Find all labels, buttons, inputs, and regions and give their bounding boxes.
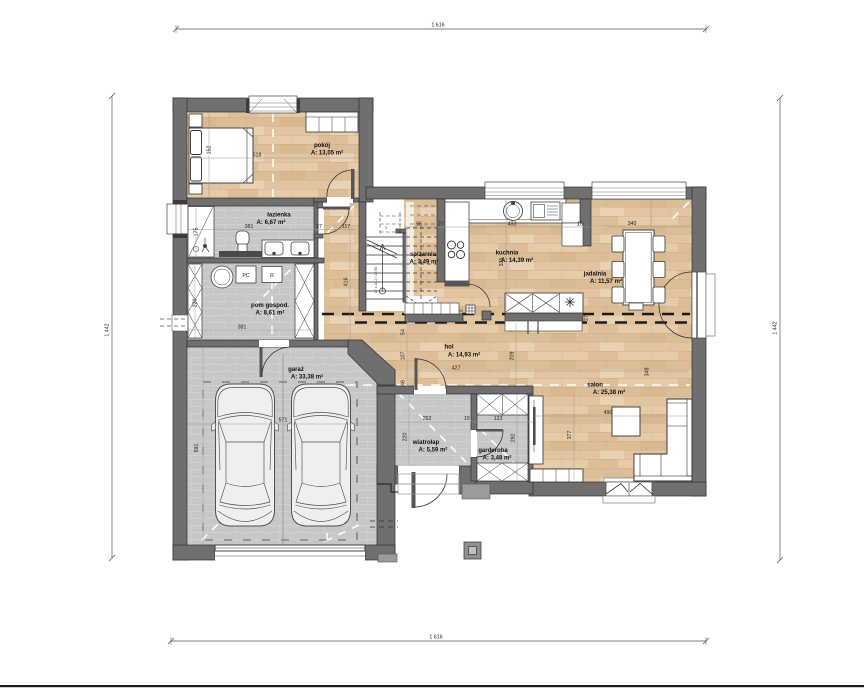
svg-text:175: 175 (194, 228, 200, 237)
svg-text:220: 220 (193, 299, 199, 308)
svg-text:1 442: 1 442 (773, 321, 779, 334)
svg-text:15: 15 (464, 416, 470, 422)
svg-text:27: 27 (438, 222, 444, 228)
svg-text:A: 8,61 m²: A: 8,61 m² (256, 310, 285, 317)
svg-text:46: 46 (401, 380, 407, 386)
svg-text:A: 3,49 m²: A: 3,49 m² (410, 259, 439, 266)
svg-text:A: 14,39 m²: A: 14,39 m² (501, 257, 533, 264)
svg-text:PC: PC (242, 273, 249, 279)
svg-text:1 616: 1 616 (431, 23, 444, 29)
svg-text:340: 340 (628, 221, 637, 227)
svg-text:garaż: garaż (288, 367, 304, 373)
svg-text:96: 96 (416, 222, 422, 228)
svg-text:wiatrołap: wiatrołap (412, 440, 440, 446)
svg-text:348: 348 (645, 368, 651, 377)
svg-text:A: 14,93 m²: A: 14,93 m² (448, 352, 480, 359)
svg-text:381: 381 (238, 325, 247, 331)
svg-text:spiżarnia: spiżarnia (410, 252, 437, 258)
svg-text:427: 427 (452, 366, 461, 372)
svg-text:209: 209 (510, 352, 516, 361)
svg-text:416: 416 (344, 278, 350, 287)
svg-text:54: 54 (401, 329, 407, 335)
svg-text:hol: hol (444, 345, 453, 351)
svg-text:17 x 18,2 / 25,50: 17 x 18,2 / 25,50 (374, 267, 378, 294)
svg-text:27: 27 (584, 315, 590, 321)
svg-text:591: 591 (194, 444, 200, 453)
svg-text:133: 133 (494, 416, 503, 422)
svg-text:15: 15 (577, 222, 583, 228)
svg-text:kuchnia: kuchnia (496, 251, 519, 257)
svg-text:A: 3,48 m²: A: 3,48 m² (483, 455, 512, 462)
svg-text:1 616: 1 616 (429, 635, 442, 641)
svg-text:A: 33,38 m²: A: 33,38 m² (291, 374, 323, 381)
svg-text:pom gospod.: pom gospod. (251, 303, 289, 309)
svg-text:292: 292 (511, 434, 517, 443)
svg-text:433: 433 (508, 222, 517, 228)
svg-text:A: 13,05 m²: A: 13,05 m² (311, 150, 343, 157)
svg-text:117: 117 (342, 224, 350, 230)
svg-text:252: 252 (423, 416, 432, 422)
svg-text:pokój: pokój (314, 143, 330, 149)
svg-text:107: 107 (401, 352, 407, 361)
svg-text:salon: salon (587, 383, 603, 389)
svg-text:152: 152 (207, 146, 213, 155)
svg-text:27: 27 (316, 224, 322, 230)
svg-text:490: 490 (604, 410, 613, 416)
svg-text:571: 571 (279, 418, 288, 424)
svg-text:A: 6,67 m²: A: 6,67 m² (257, 219, 286, 226)
svg-text:1 442: 1 442 (105, 323, 111, 336)
svg-text:220: 220 (403, 433, 409, 442)
svg-text:381: 381 (245, 224, 254, 230)
svg-text:A: 25,38 m²: A: 25,38 m² (593, 389, 625, 396)
svg-text:garderoba: garderoba (478, 448, 508, 454)
svg-text:ks: ks (459, 308, 463, 313)
svg-text:A: 11,57 m²: A: 11,57 m² (590, 278, 622, 285)
svg-text:R: R (270, 273, 274, 279)
svg-text:377: 377 (567, 431, 573, 440)
svg-text:A: 5,59 m²: A: 5,59 m² (419, 447, 448, 454)
svg-text:jadalnia: jadalnia (583, 272, 607, 278)
svg-text:335: 335 (499, 258, 505, 267)
svg-text:518: 518 (253, 153, 262, 159)
svg-text:łazienka: łazienka (267, 213, 291, 219)
